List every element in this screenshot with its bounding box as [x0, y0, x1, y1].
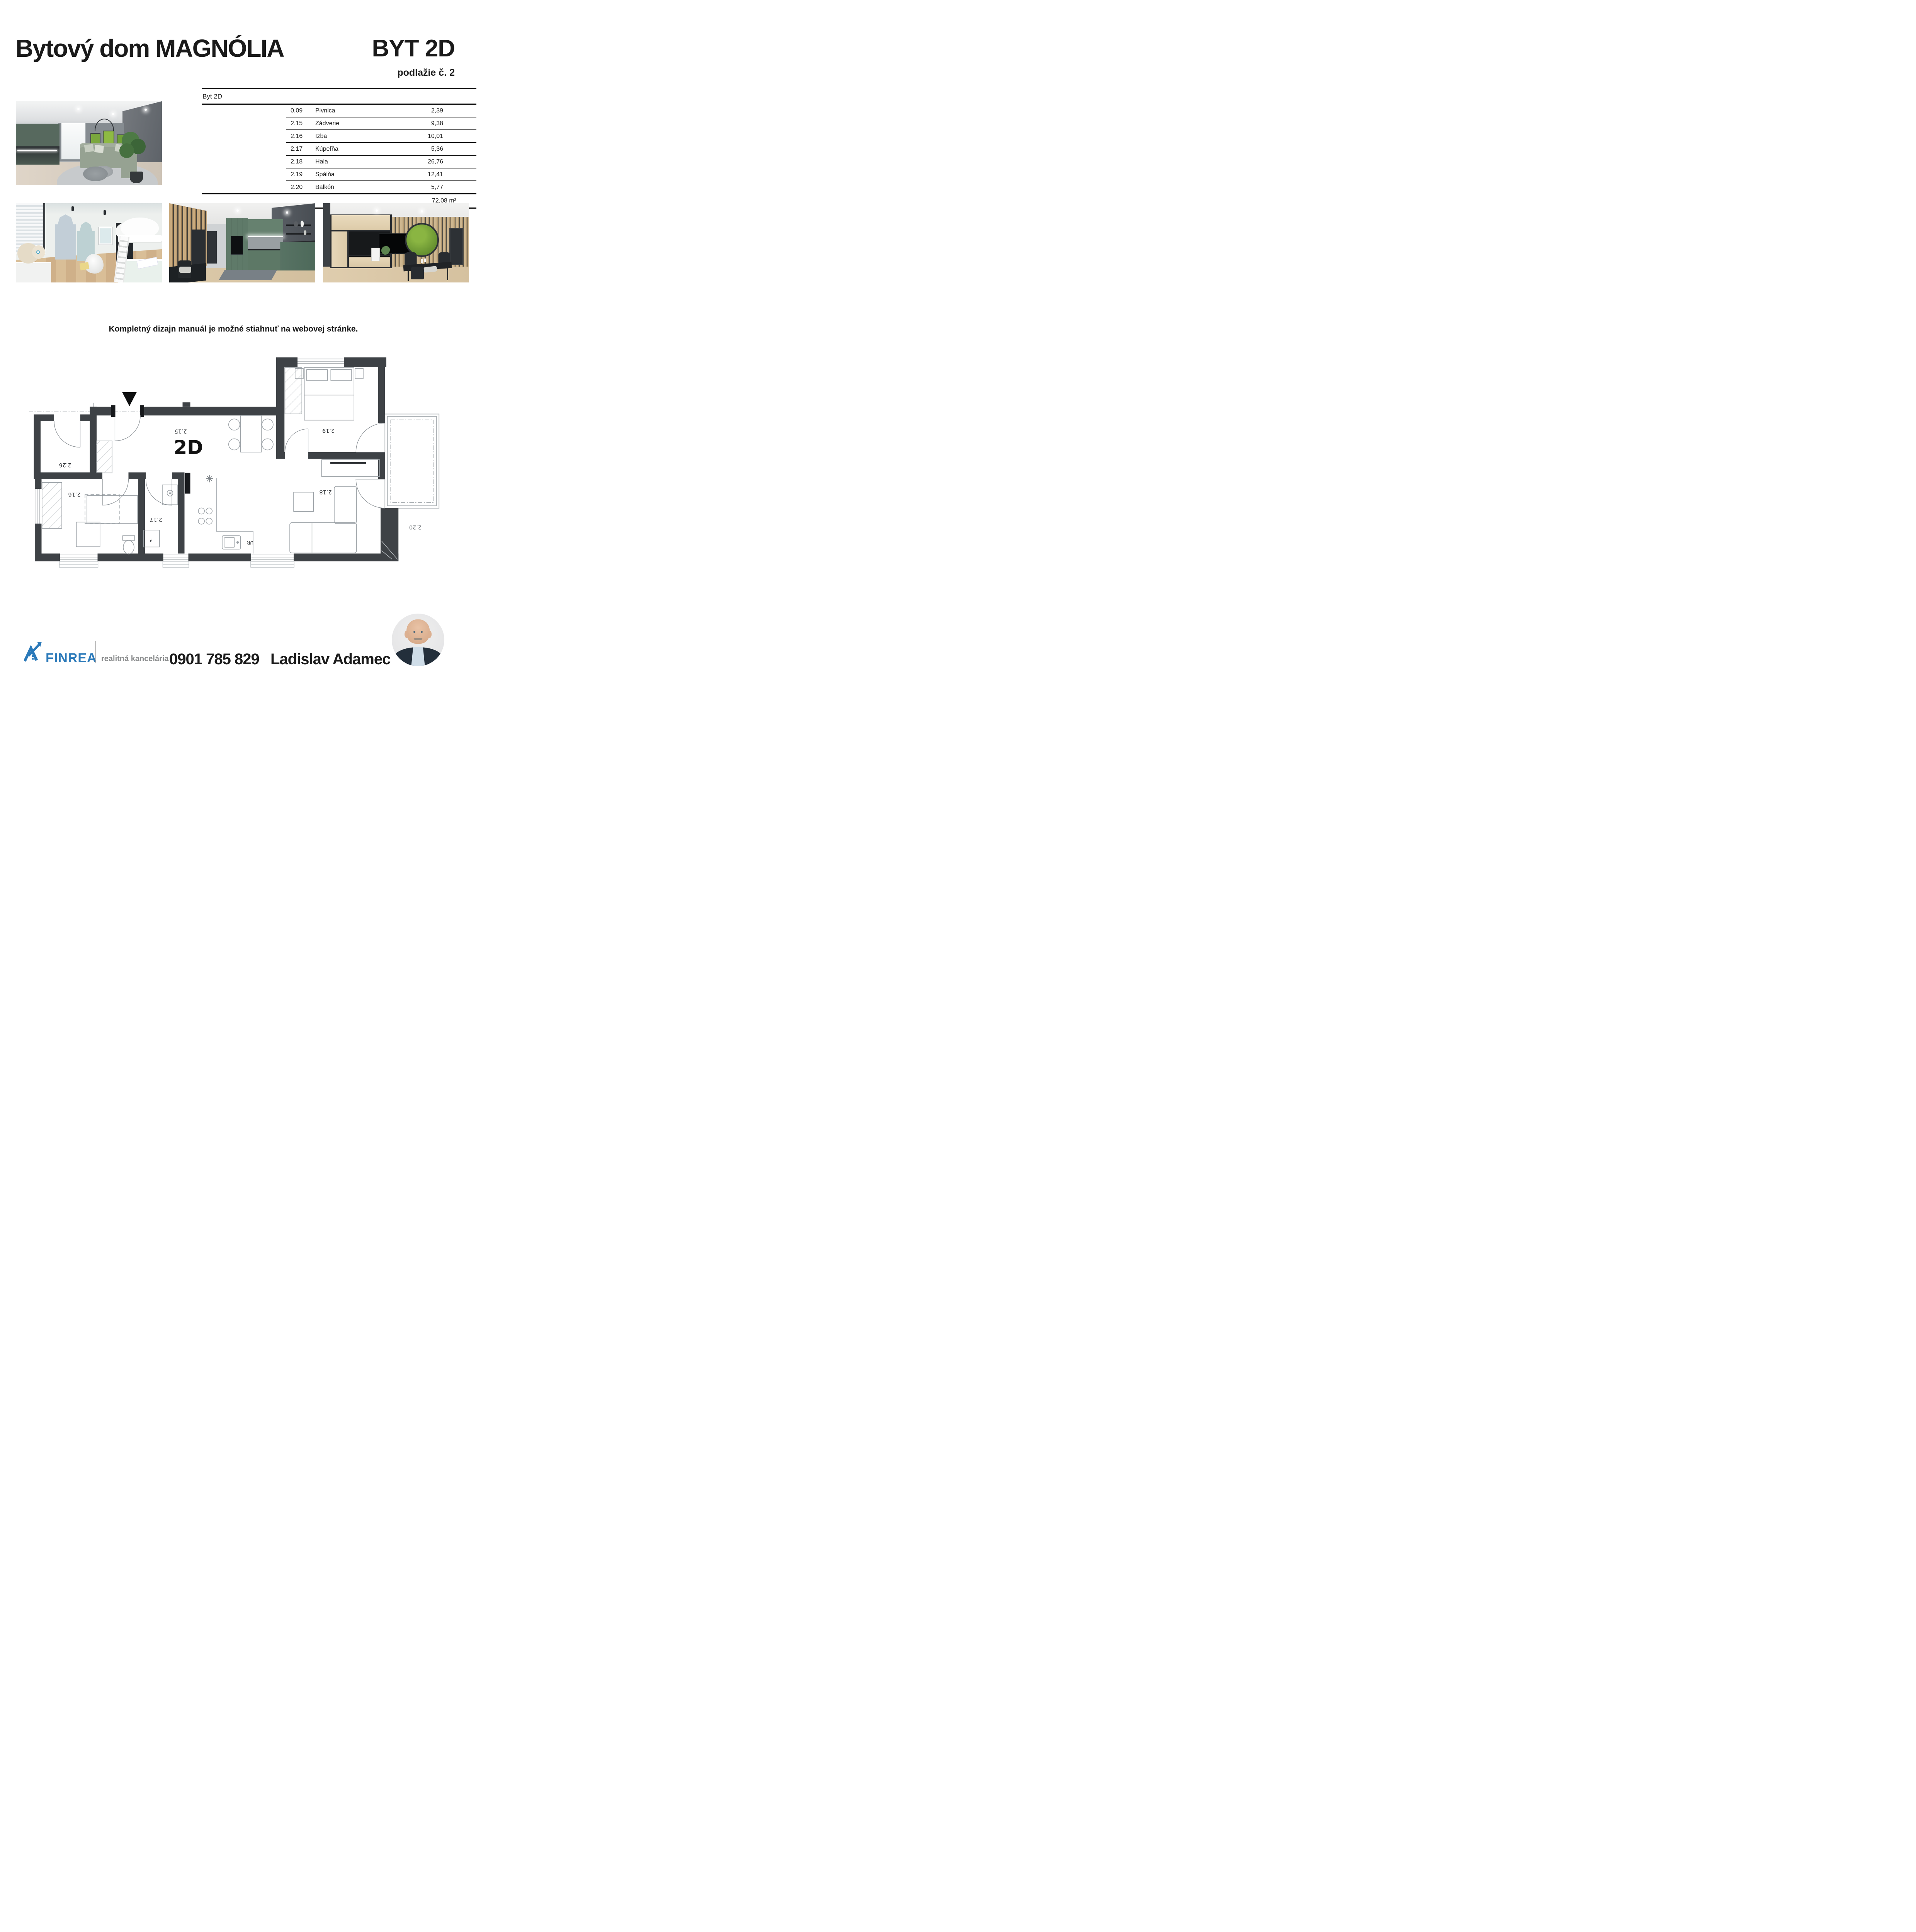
dark-wall-edge [323, 203, 330, 268]
photo-kitchen [169, 203, 315, 282]
table-row: 2.15 Zádverie 9,38 [202, 117, 476, 129]
pillow [331, 369, 352, 381]
room-label-226: 2.26 [59, 462, 71, 468]
toilet [123, 541, 134, 554]
house-wardrobe [55, 214, 76, 260]
room-area: 10,01 [415, 133, 476, 140]
entrance-arrow-icon [122, 392, 137, 406]
wardrobe [42, 483, 62, 529]
coffee-table [294, 492, 313, 512]
table-row: 2.19 Spálňa 12,41 [202, 168, 476, 180]
dresser [16, 262, 51, 282]
ceiling-spot [71, 206, 74, 211]
phone-number: 0901 785 829 [169, 651, 259, 668]
moss-circle [405, 223, 439, 257]
sink-label: UR [247, 540, 253, 546]
room-code: 2.18 [202, 158, 315, 165]
photo-living-room [16, 101, 162, 185]
unit-label: 2D [173, 436, 203, 459]
avatar-ear [405, 631, 409, 638]
page-title: Bytový dom MAGNÓLIA [15, 34, 284, 63]
photo-kids-room [16, 203, 162, 282]
vanity [162, 485, 178, 505]
room-name: Zádverie [315, 120, 415, 127]
window-sills [60, 562, 294, 568]
wall-shelf [286, 224, 311, 226]
green-kitchen [16, 124, 60, 165]
avatar-ear [428, 631, 432, 638]
backsplash [248, 237, 283, 249]
avatar-mustache [413, 638, 422, 641]
wardrobe [285, 367, 302, 414]
dining-table [241, 415, 262, 452]
floor-label: podlažie č. 2 [397, 67, 455, 78]
vase [294, 221, 298, 227]
room-label-220: 2.20 [409, 524, 422, 530]
plant [119, 132, 147, 178]
room-label-215: 2.15 [175, 428, 187, 434]
tv [330, 462, 366, 464]
room-label-219: 2.19 [322, 427, 335, 434]
couch-216 [77, 522, 100, 547]
toilet-tank [123, 536, 135, 540]
led-strip [17, 150, 57, 151]
green-base-cabinet [248, 249, 283, 270]
bed [304, 367, 354, 420]
black-door [207, 231, 217, 264]
finrea-logo-icon [24, 641, 44, 662]
agent-name: Ladislav Adamec [270, 651, 390, 668]
fridge-column [185, 473, 190, 494]
avatar-eye [413, 631, 415, 633]
yellow-pillow [80, 262, 90, 270]
room-area: 5,36 [415, 146, 476, 153]
hob-ring [198, 508, 204, 514]
room-code: 2.15 [202, 120, 315, 127]
table-row: 0.09 Pivnica 2,39 [202, 105, 476, 117]
room-code: 2.17 [202, 146, 315, 153]
room-code: 0.09 [202, 107, 315, 114]
spotlight [286, 211, 288, 214]
light-symbol [206, 475, 213, 482]
room-name: Izba [315, 133, 415, 140]
room-code: 2.19 [202, 171, 315, 178]
table-row: 2.17 Kúpeľňa 5,36 [202, 143, 476, 155]
brand-name: FINREA [46, 651, 97, 666]
room-label-216: 2.16 [68, 491, 80, 497]
sofa-chaise [334, 486, 357, 524]
room-area: 2,39 [415, 107, 476, 114]
base-cabinets [349, 256, 391, 267]
room-area: 12,41 [415, 171, 476, 178]
room-code: 2.20 [202, 184, 315, 191]
area-table: Byt 2D 0.09 Pivnica 2,39 2.15 Zádverie 9… [202, 88, 476, 209]
ceiling-spot [104, 210, 106, 215]
hob-ring [206, 508, 212, 514]
floor-mat [219, 270, 277, 280]
vase [301, 221, 304, 227]
room-name: Spálňa [315, 171, 415, 178]
pillow [94, 145, 104, 153]
room-name: Pivnica [315, 107, 415, 114]
table-header: Byt 2D [202, 89, 476, 104]
washer-label: P [150, 537, 153, 543]
upper-cabinets [332, 215, 390, 231]
candle [424, 259, 426, 262]
wardrobe [96, 441, 112, 473]
tall-cabinet [332, 231, 347, 267]
spotlight [77, 108, 80, 110]
room-label-218: 2.18 [319, 489, 332, 495]
brand-tagline: realitná kancelária [101, 655, 169, 663]
photo-dining-area [323, 203, 469, 282]
chair [411, 267, 424, 279]
sofa [290, 523, 357, 553]
table-leg [447, 268, 448, 280]
nightstand [355, 369, 363, 379]
pillow [84, 144, 94, 153]
chair [262, 419, 273, 430]
room-area: 9,38 [415, 120, 476, 127]
chair-seat [179, 267, 191, 273]
room-area: 5,77 [415, 184, 476, 191]
room-area: 26,76 [415, 158, 476, 165]
table-row: 2.20 Balkón 5,77 [202, 181, 476, 193]
balcony-outline [385, 414, 439, 509]
footer-divider [95, 641, 96, 663]
room-name: Balkón [315, 184, 415, 191]
room-name: Kúpeľňa [315, 146, 415, 153]
avatar-shirt [411, 647, 425, 666]
built-in-oven [231, 236, 243, 255]
table-leg [408, 269, 409, 281]
chair [262, 439, 273, 450]
hob-ring [206, 518, 212, 524]
design-note: Kompletný dizajn manuál je možné stiahnu… [25, 325, 442, 334]
hob-ring [198, 518, 204, 524]
chair [229, 439, 240, 450]
vase [304, 230, 306, 235]
chair [229, 419, 240, 430]
green-wall-cabinet [248, 219, 283, 236]
art-print [371, 248, 380, 261]
green-island-cabinet [280, 240, 315, 270]
table-row: 2.18 Hala 26,76 [202, 156, 476, 168]
room-name: Hala [315, 158, 415, 165]
table-row: 2.16 Izba 10,01 [202, 130, 476, 142]
pillow [307, 369, 328, 381]
room-code: 2.16 [202, 133, 315, 140]
black-door [449, 228, 463, 265]
room-label-217: 2.17 [150, 516, 162, 522]
wall-shelf [286, 233, 311, 235]
agent-avatar [392, 614, 444, 666]
floor-plan: 2.15 2D 2.16 2.17 2.18 2.19 2.20 2.26 UR… [29, 348, 454, 570]
unit-title: BYT 2D [372, 35, 455, 62]
map-poster [99, 227, 112, 245]
black-door [192, 230, 205, 265]
candle [421, 259, 423, 263]
bed-216 [87, 496, 138, 524]
